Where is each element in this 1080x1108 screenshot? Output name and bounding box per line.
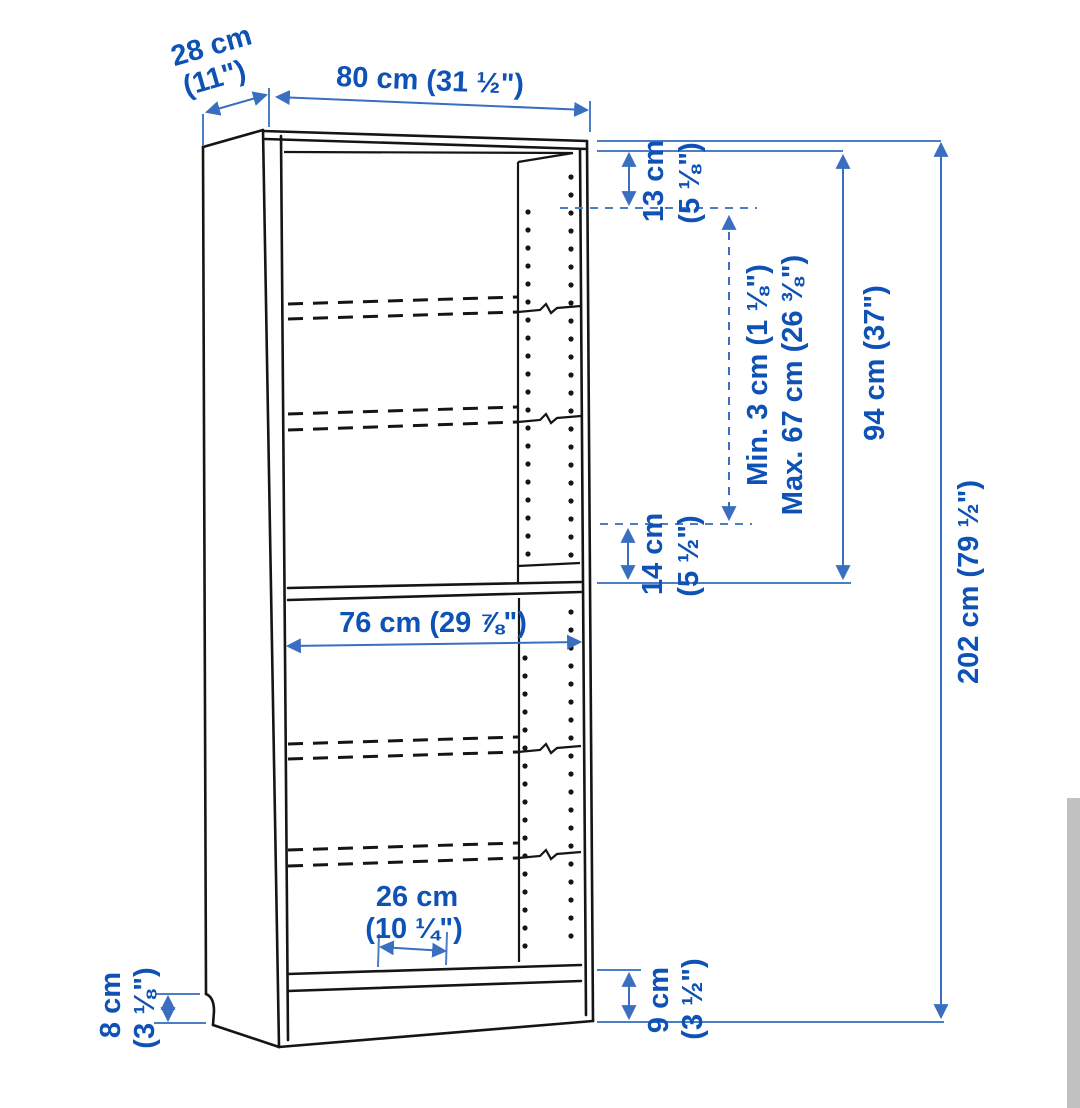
upper-height-label: 94 cm (37") xyxy=(859,285,891,441)
plinth-left-imperial-label: (3 ⅛") xyxy=(129,967,161,1048)
shelf-adjust-max-label: Max. 67 cm (26 ⅜") xyxy=(777,255,809,515)
shelf-adjust-min-label: Min. 3 cm (1 ⅛") xyxy=(742,264,774,486)
width-dimension-arrow xyxy=(277,97,587,110)
depth-dimension-arrow xyxy=(207,95,266,112)
bottom-inset-dimension-arrow xyxy=(381,947,445,951)
bookcase-dimension-diagram: 28 cm (11") 80 cm (31 ½") 13 cm (5 ⅛") M… xyxy=(0,0,1080,1108)
middle-gap-imperial-label: (5 ½") xyxy=(673,515,705,596)
diagram-canvas: 28 cm (11") 80 cm (31 ½") 13 cm (5 ⅛") M… xyxy=(0,0,1080,1108)
adjustable-shelves xyxy=(288,297,581,866)
dimension-reference-lines xyxy=(154,88,944,1023)
plinth-right-metric-label: 9 cm xyxy=(643,967,675,1033)
top-gap-metric-label: 13 cm xyxy=(638,140,670,222)
inner-width-label: 76 cm (29 ⅞") xyxy=(339,607,527,639)
bottom-inset-metric-label: 26 cm xyxy=(376,881,458,913)
middle-gap-metric-label: 14 cm xyxy=(637,513,669,595)
total-height-label: 202 cm (79 ½") xyxy=(953,480,985,684)
plinth-left-metric-label: 8 cm xyxy=(95,972,127,1038)
top-gap-imperial-label: (5 ⅛") xyxy=(674,142,706,223)
bottom-inset-imperial-label: (10 ¼") xyxy=(365,913,463,945)
plinth-right-imperial-label: (3 ½") xyxy=(677,958,709,1039)
scrollbar-thumb[interactable] xyxy=(1067,798,1080,1108)
width-label: 80 cm (31 ½") xyxy=(336,61,525,101)
dimension-labels: 28 cm (11") 80 cm (31 ½") 13 cm (5 ⅛") M… xyxy=(95,19,985,1048)
inner-width-dimension-arrow xyxy=(288,642,580,646)
